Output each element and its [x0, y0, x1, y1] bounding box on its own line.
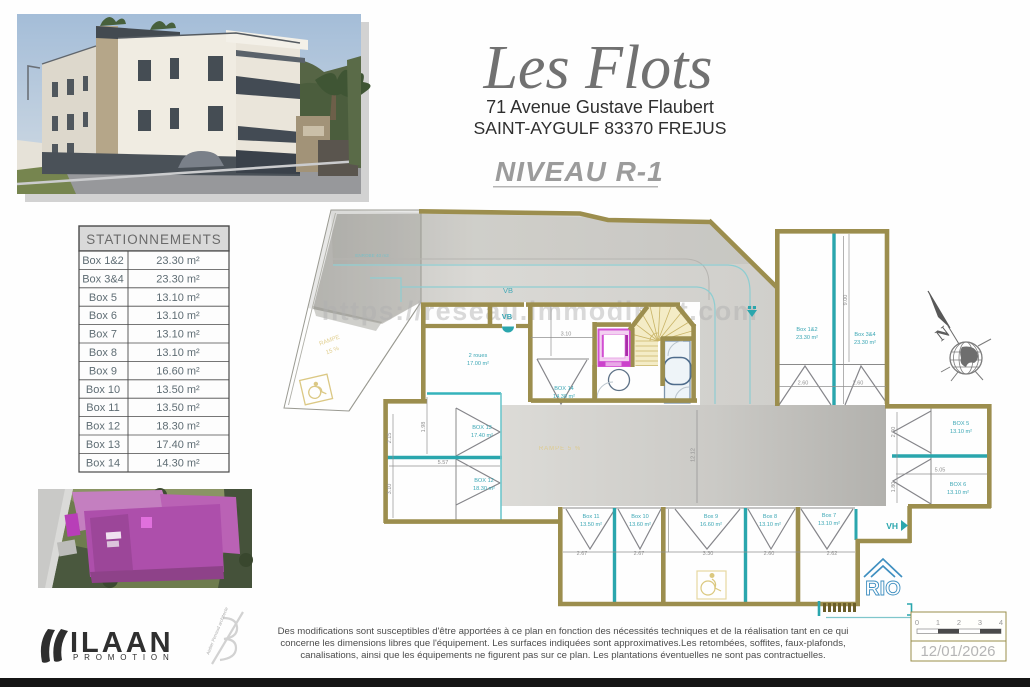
svg-text:9.00: 9.00 — [843, 295, 849, 306]
svg-text:71 Avenue Gustave Flaubert: 71 Avenue Gustave Flaubert — [486, 97, 714, 117]
svg-text:STATIONNEMENTS: STATIONNEMENTS — [86, 232, 222, 247]
svg-text:canalisations, ainsi que les é: canalisations, ainsi que les équipements… — [300, 650, 825, 661]
svg-text:Box 9: Box 9 — [704, 514, 718, 520]
svg-text:17.40 m²: 17.40 m² — [156, 439, 200, 451]
svg-text:18.30 m²: 18.30 m² — [473, 486, 495, 492]
svg-text:2.60: 2.60 — [853, 381, 864, 387]
svg-text:Box 7: Box 7 — [89, 329, 117, 341]
svg-text:BOX 6: BOX 6 — [950, 482, 966, 488]
svg-text:14.30 m²: 14.30 m² — [553, 394, 575, 400]
svg-text:1.98: 1.98 — [421, 422, 427, 433]
svg-text:Box 13: Box 13 — [86, 439, 120, 451]
svg-text:RIO: RIO — [865, 578, 901, 600]
svg-text:3: 3 — [978, 618, 982, 627]
svg-text:Box 9: Box 9 — [89, 365, 117, 377]
svg-text:Box 8: Box 8 — [763, 514, 777, 520]
svg-text:23.30 m²: 23.30 m² — [156, 273, 200, 285]
svg-text:Box 5: Box 5 — [89, 292, 117, 304]
svg-text:Box 10: Box 10 — [86, 384, 120, 396]
svg-text:2.67: 2.67 — [577, 551, 588, 557]
svg-text:RAMPE 5 %: RAMPE 5 % — [539, 446, 581, 452]
svg-text:18.30 m²: 18.30 m² — [156, 421, 200, 433]
svg-text:Atelier Perraud architecte: Atelier Perraud architecte — [205, 606, 229, 655]
svg-text:SAINT-AYGULF 83370 FREJUS: SAINT-AYGULF 83370 FREJUS — [474, 118, 727, 138]
svg-text:13.10 m²: 13.10 m² — [818, 521, 840, 527]
svg-text:2.60: 2.60 — [891, 427, 897, 438]
svg-text:17.40 m²: 17.40 m² — [471, 433, 493, 439]
svg-text:Box 11: Box 11 — [86, 402, 119, 414]
svg-text:VH: VH — [886, 521, 898, 531]
svg-text:3.10: 3.10 — [387, 484, 393, 495]
svg-text:Les Flots: Les Flots — [482, 34, 712, 102]
svg-text:Box 14: Box 14 — [86, 457, 120, 469]
svg-text:13.10 m²: 13.10 m² — [156, 329, 200, 341]
svg-text:Box 11: Box 11 — [583, 514, 600, 520]
svg-text:2.15: 2.15 — [387, 433, 393, 444]
svg-text:2.60: 2.60 — [764, 551, 775, 557]
svg-text:BOX 12: BOX 12 — [474, 478, 494, 484]
svg-text:13.10 m²: 13.10 m² — [947, 490, 969, 496]
svg-text:12.12: 12.12 — [691, 448, 697, 462]
svg-text:Box 3&4: Box 3&4 — [854, 332, 875, 338]
svg-text:2: 2 — [957, 618, 961, 627]
svg-text:BOX 13: BOX 13 — [472, 425, 492, 431]
svg-text:13.50 m²: 13.50 m² — [580, 522, 602, 528]
svg-text:0: 0 — [915, 618, 919, 627]
svg-text:23.30 m²: 23.30 m² — [796, 335, 818, 341]
svg-text:13.10 m²: 13.10 m² — [759, 522, 781, 528]
svg-text:Box 7: Box 7 — [822, 513, 836, 519]
svg-text:concerne les dimensions libres: concerne les dimensions libres que l'équ… — [280, 638, 845, 649]
svg-text:Box 12: Box 12 — [86, 421, 120, 433]
svg-text:VB: VB — [503, 286, 513, 295]
svg-text:13.50 m²: 13.50 m² — [156, 384, 200, 396]
svg-text:12/01/2026: 12/01/2026 — [920, 643, 995, 660]
svg-text:1.80: 1.80 — [891, 482, 897, 493]
svg-text:13.10 m²: 13.10 m² — [950, 429, 972, 435]
svg-text:5.05: 5.05 — [935, 468, 946, 474]
svg-text:15 %: 15 % — [325, 346, 341, 357]
svg-text:14.30 m²: 14.30 m² — [156, 457, 200, 469]
svg-text:13.10 m²: 13.10 m² — [156, 310, 200, 322]
svg-text:BOX 5: BOX 5 — [953, 421, 969, 427]
svg-text:17.00 m²: 17.00 m² — [467, 361, 489, 367]
svg-text:16.60 m²: 16.60 m² — [700, 522, 722, 528]
svg-text:Box 10: Box 10 — [631, 514, 648, 520]
svg-text:VB: VB — [502, 312, 513, 321]
svg-text:3.30: 3.30 — [703, 551, 714, 557]
svg-text:23.30 m²: 23.30 m² — [854, 340, 876, 346]
svg-text:N: N — [932, 322, 954, 345]
svg-text:Des modifications sont suscept: Des modifications sont susceptibles d'êt… — [278, 626, 849, 637]
svg-text:23.30 m²: 23.30 m² — [156, 255, 200, 267]
svg-text:Box 6: Box 6 — [89, 310, 117, 322]
svg-text:16.60 m²: 16.60 m² — [156, 365, 200, 377]
svg-text:Box 8: Box 8 — [89, 347, 117, 359]
svg-text:ENROBE 40 m3: ENROBE 40 m3 — [355, 253, 389, 258]
svg-text:1: 1 — [936, 618, 940, 627]
svg-text:13.50 m²: 13.50 m² — [156, 402, 200, 414]
svg-text:PROMOTION: PROMOTION — [73, 653, 175, 662]
svg-text:Box 3&4: Box 3&4 — [82, 273, 124, 285]
svg-text:3.10: 3.10 — [561, 332, 572, 338]
svg-text:Box 1&2: Box 1&2 — [796, 327, 817, 333]
svg-text:2.60: 2.60 — [798, 381, 809, 387]
svg-text:13.10 m²: 13.10 m² — [156, 292, 200, 304]
svg-text:13.60 m²: 13.60 m² — [629, 522, 651, 528]
svg-text:BOX 14: BOX 14 — [554, 386, 574, 392]
svg-text:4: 4 — [999, 618, 1003, 627]
svg-text:Box 1&2: Box 1&2 — [82, 255, 124, 267]
svg-text:2 roues: 2 roues — [469, 353, 488, 359]
svg-text:2.62: 2.62 — [827, 551, 838, 557]
svg-text:NIVEAU R-1: NIVEAU R-1 — [495, 156, 664, 187]
svg-text:13.10 m²: 13.10 m² — [156, 347, 200, 359]
svg-text:5.57: 5.57 — [438, 460, 449, 466]
svg-text:2.67: 2.67 — [634, 551, 645, 557]
